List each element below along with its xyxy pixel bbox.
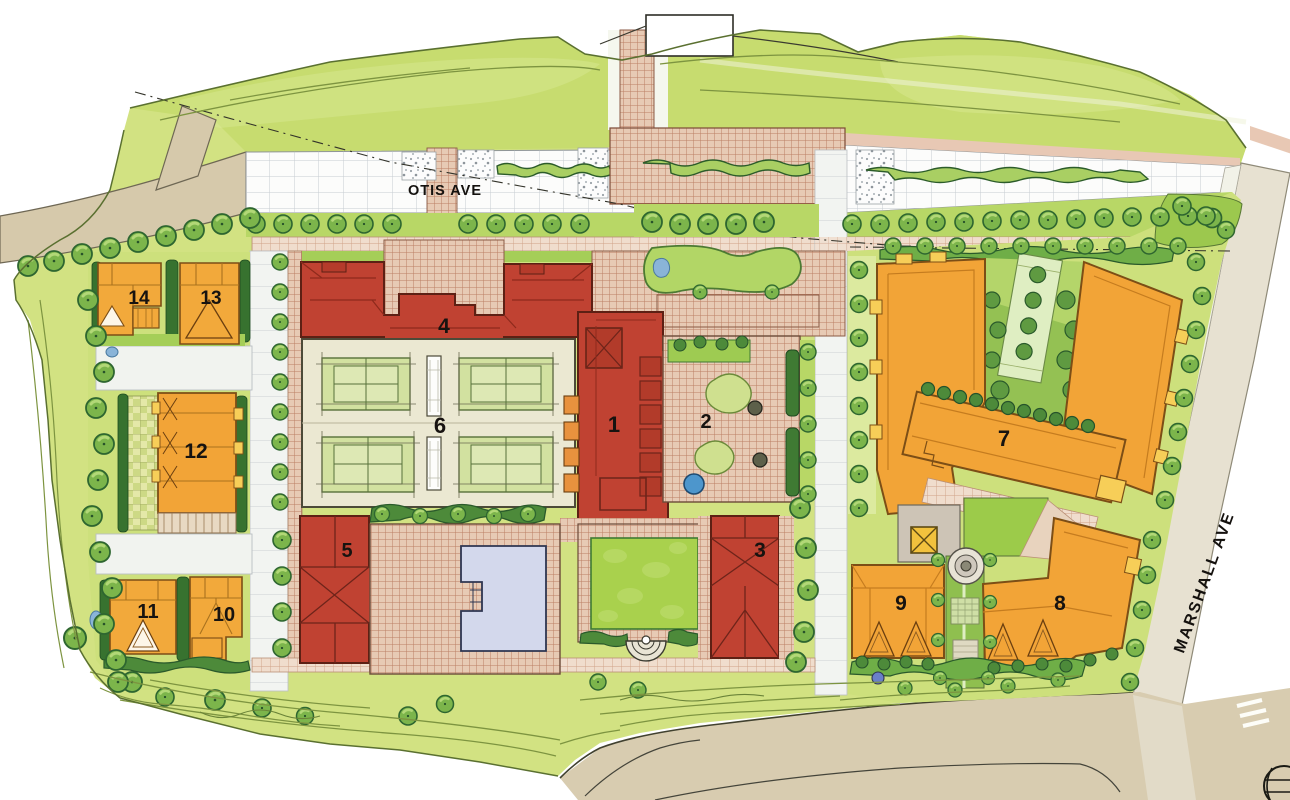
svg-text:1: 1 (608, 412, 620, 437)
svg-text:9: 9 (895, 592, 907, 615)
svg-text:14: 14 (128, 288, 150, 309)
svg-text:12: 12 (184, 440, 207, 463)
svg-text:7: 7 (998, 426, 1010, 451)
svg-text:2: 2 (700, 411, 711, 433)
svg-text:4: 4 (438, 315, 450, 338)
svg-text:5: 5 (341, 540, 352, 562)
svg-text:13: 13 (200, 288, 221, 309)
svg-text:3: 3 (754, 539, 766, 562)
svg-text:11: 11 (137, 601, 158, 623)
svg-text:6: 6 (434, 413, 446, 438)
svg-text:8: 8 (1054, 592, 1066, 615)
svg-text:10: 10 (213, 604, 235, 626)
svg-text:OTIS AVE: OTIS AVE (408, 183, 482, 199)
